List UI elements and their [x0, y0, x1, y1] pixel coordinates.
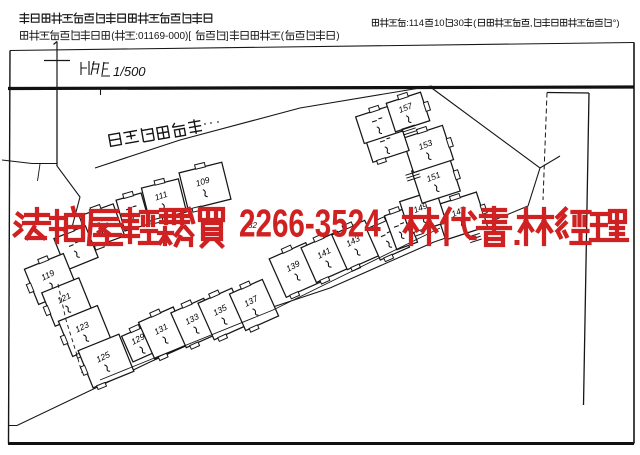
svg-text:10: 10 — [434, 18, 445, 29]
svg-text:]: ] — [226, 31, 229, 42]
svg-text:,: , — [530, 18, 533, 29]
svg-text:): ) — [336, 31, 339, 42]
svg-text:30: 30 — [453, 18, 464, 29]
svg-text::114: :114 — [406, 18, 424, 29]
svg-text::01169-000)[: :01169-000)[ — [135, 31, 191, 42]
svg-text:1/500: 1/500 — [113, 64, 146, 79]
svg-text:2266-3524: 2266-3524 — [239, 203, 381, 246]
svg-text:°): °) — [613, 18, 620, 29]
